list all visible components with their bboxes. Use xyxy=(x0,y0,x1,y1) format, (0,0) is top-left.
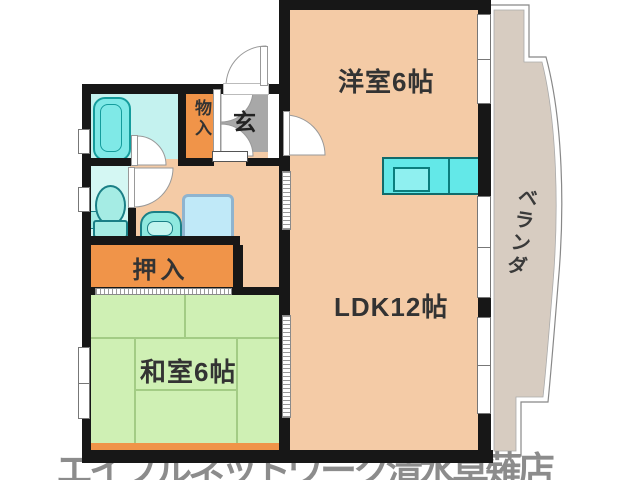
wall xyxy=(82,236,240,245)
genkan-label: 玄 xyxy=(233,103,256,137)
western-room-window xyxy=(477,14,491,104)
wall xyxy=(279,0,290,113)
wall xyxy=(178,88,186,166)
ldk-label: LDK12帖 xyxy=(334,287,448,324)
genkan-step xyxy=(212,151,248,162)
washroom-door-swing xyxy=(134,168,173,207)
entrance-door-leaf xyxy=(260,46,268,86)
ldk-window-upper xyxy=(477,196,491,298)
wall xyxy=(82,158,135,166)
japanese-room-label: 和室6帖 xyxy=(140,352,236,389)
toilet-door-leaf xyxy=(128,167,135,208)
storage-door-leaf xyxy=(213,89,221,157)
japanese-room-sliding-door xyxy=(282,315,291,418)
wall xyxy=(246,158,280,166)
oshiire-label: 押入 xyxy=(88,250,233,285)
bathroom-door-swing xyxy=(137,136,166,165)
wall xyxy=(82,450,493,463)
western-room-door-leaf xyxy=(283,111,290,156)
bathroom-door-leaf xyxy=(131,135,138,166)
storage-label: 物入 xyxy=(189,99,214,139)
japanese-room-window xyxy=(78,347,90,419)
ldk-window-lower xyxy=(477,317,491,414)
floor-plan: エイブルネットワーク清水草薙店 洋室6帖 LDK12帖 和室6帖 押入 物入 玄… xyxy=(0,0,640,480)
ldk-entry-door xyxy=(282,171,291,230)
toilet-window xyxy=(78,187,90,212)
western-room-door-swing xyxy=(285,115,325,155)
western-room-label: 洋室6帖 xyxy=(338,62,434,99)
bathroom-window xyxy=(78,129,90,154)
oshiire-fusuma xyxy=(95,288,232,295)
wall xyxy=(280,0,490,10)
